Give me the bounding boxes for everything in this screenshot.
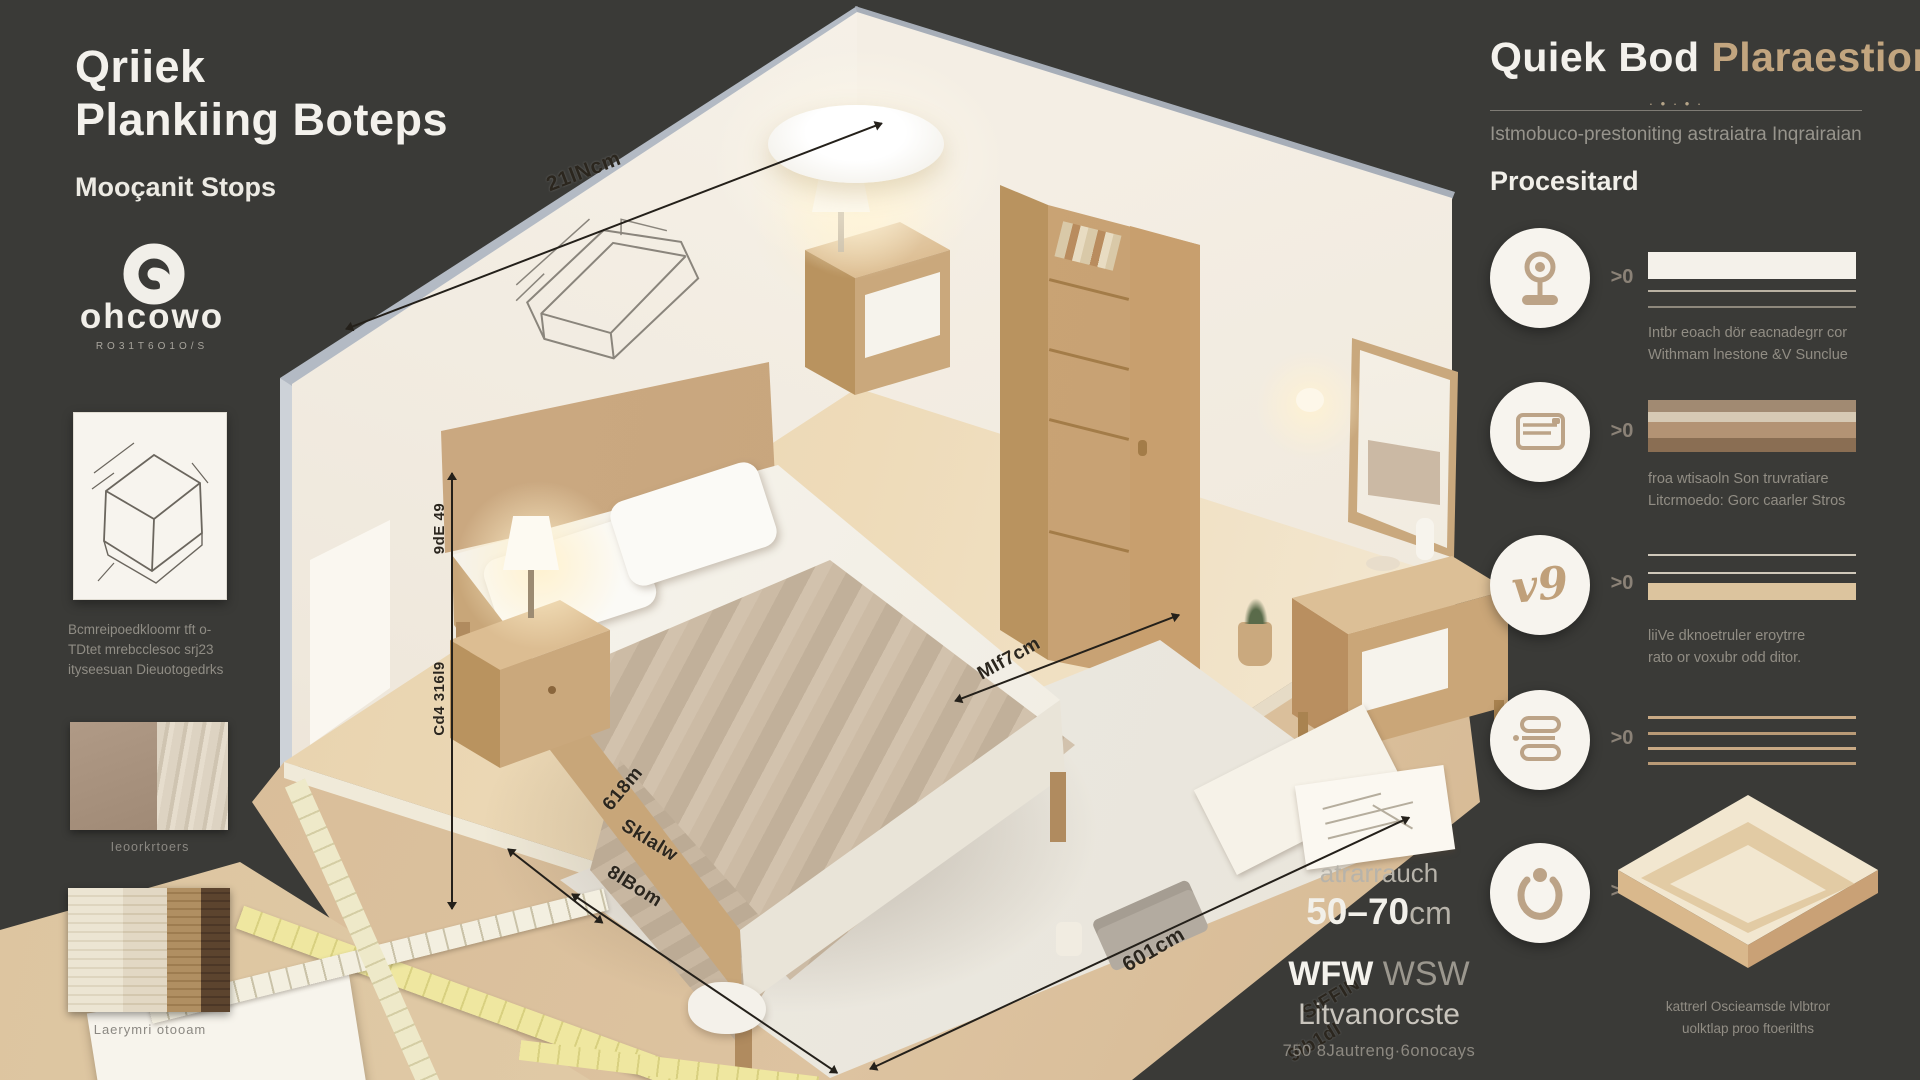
mattress-sketch: [74, 413, 226, 599]
spec-range-value: 50–70: [1306, 891, 1409, 932]
floor-cloth: [688, 982, 766, 1034]
right-title-part2: Plaraestion: [1711, 34, 1920, 80]
swatch-strip-2: [123, 888, 167, 1012]
right-subtitle: Istmobuco-prestoniting astraiatra Inqrai…: [1490, 124, 1890, 146]
pin-marker-icon: [1505, 243, 1575, 313]
page-subtitle: Mooçanit Stops: [75, 172, 276, 203]
spec-code-strong: WFW: [1288, 955, 1373, 993]
sketch-caption: Bcmreipoedkloomr tft o- TDtet mrebccleso…: [68, 620, 243, 680]
dim-label-height-b: Cd4 316l9: [431, 661, 448, 736]
step1-line-2: [1648, 306, 1856, 308]
bed-leg-right: [1050, 772, 1066, 842]
step4-line-1: [1648, 716, 1856, 719]
sketch-caption-line1: Bcmreipoedkloomr tft o-: [68, 620, 243, 640]
step4-line-4: [1648, 762, 1856, 765]
sketch-caption-line2: TDtet mrebcclesoc srj23: [68, 640, 243, 660]
step3-bar-tan: [1648, 583, 1856, 600]
step3-icon-text: v9: [1509, 557, 1570, 614]
step3-circle: v9: [1490, 535, 1590, 635]
title-divider: [1490, 110, 1862, 111]
brand-tagline: RO31T6O1O/S: [30, 341, 274, 352]
spec-code: WFW WSW: [1228, 955, 1530, 994]
swatch-strip-3: [167, 888, 201, 1012]
nightstand-left-knob: [548, 686, 556, 694]
sketch-thumbnail-card: [73, 412, 227, 600]
step2-marker: >0: [1600, 420, 1644, 443]
step4-marker: >0: [1600, 727, 1644, 750]
lamp-right-stem: [838, 210, 844, 252]
step1-caption-line2: Withmam lnestone &V Sunclue: [1648, 344, 1883, 366]
step3-caption-line1: liiVe dknoetruler eroytrre: [1648, 625, 1883, 647]
desk-vase: [1416, 518, 1434, 560]
fabric-swatch-strips: [68, 888, 230, 1012]
spec-footnote: 750 8Jautreng·6onocays: [1228, 1042, 1530, 1061]
desk-bowl: [1366, 556, 1400, 571]
infographic-canvas: 21lNcm 9dE 49 Cd4 316l9 MIf7cm 601cm SIF…: [0, 0, 1920, 1080]
fabric-swatch-draped: [70, 722, 228, 830]
step5-caption-line2: uolktlap proo ftoerilths: [1608, 1018, 1888, 1040]
spec-name: Litvanorcste: [1228, 998, 1530, 1032]
swatch-strip-1: [68, 888, 123, 1012]
plant-bin: [1238, 622, 1272, 666]
step3-caption: liiVe dknoetruler eroytrre rato or voxub…: [1648, 625, 1883, 669]
step2-caption-line2: Litcrmoedo: Gorc caarler Stros: [1648, 490, 1883, 512]
step2-circle: [1490, 382, 1590, 482]
step1-line-1: [1648, 290, 1856, 292]
title-divider-marks: · • · • ·: [1490, 96, 1862, 111]
fabric-swatch-draped-label: Ieoorkrtoers: [60, 840, 240, 854]
step3-line-1: [1648, 554, 1856, 556]
dim-arrow-wall-height: [451, 473, 453, 909]
spec-range-unit: cm: [1409, 895, 1452, 931]
page-title-line2: Plankiing Boteps: [75, 93, 448, 146]
card-icon: [1505, 397, 1575, 467]
brand-wordmark: ohcowo: [30, 297, 274, 337]
wardrobe-knob: [1138, 440, 1147, 456]
list-icon: [1505, 705, 1575, 775]
step1-caption: Intbr eoach dör eacnadegrr cor Withmam l…: [1648, 322, 1883, 366]
step3-marker: >0: [1600, 572, 1644, 595]
floor-bottle: [1056, 922, 1082, 956]
section-heading: Procesitard: [1490, 166, 1639, 197]
spec-range: 50–70cm: [1228, 891, 1530, 933]
page-title: Qriiek Plankiing Boteps: [75, 40, 448, 146]
spec-code-light: WSW: [1373, 955, 1469, 993]
plant-leaves: [1244, 598, 1268, 624]
right-title-part1: Quiek Bod: [1490, 34, 1711, 80]
step3-caption-line2: rato or voxubr odd ditor.: [1648, 647, 1883, 669]
sketch-caption-line3: ityseesuan Dieuotogedrks: [68, 660, 243, 680]
lamp-left-stem: [528, 566, 534, 618]
step4-circle: [1490, 690, 1590, 790]
page-title-line1: Qriiek: [75, 40, 448, 93]
step2-caption: froa wtisaoln Son truvratiare Litcrmoedo…: [1648, 468, 1883, 512]
step5-caption-line1: kattrerl Oscieamsde lvlbtror: [1608, 996, 1888, 1018]
dim-label-height-a: 9dE 49: [431, 503, 448, 554]
step1-marker: >0: [1600, 266, 1644, 289]
step1-caption-line1: Intbr eoach dör eacnadegrr cor: [1648, 322, 1883, 344]
sconce-lamp: [1296, 388, 1324, 412]
step4-line-3: [1648, 747, 1856, 750]
step1-bar-solid: [1648, 252, 1856, 279]
step2-fabric-band: [1648, 400, 1856, 452]
step3-line-2: [1648, 572, 1856, 574]
fabric-swatch-strips-label: Laerymri otooam: [55, 1022, 245, 1037]
step5-caption: kattrerl Oscieamsde lvlbtror uolktlap pr…: [1608, 996, 1888, 1040]
step4-line-2: [1648, 732, 1856, 735]
spec-block: atrarrauch 50–70cm WFW WSW Litvanorcste …: [1228, 858, 1530, 1061]
right-title: Quiek Bod Plaraestion: [1490, 34, 1920, 81]
ceiling-lamp: [768, 105, 944, 183]
step2-caption-line1: froa wtisaoln Son truvratiare: [1648, 468, 1883, 490]
step1-circle: [1490, 228, 1590, 328]
spec-approach-label: atrarrauch: [1228, 858, 1530, 889]
swatch-strip-4: [201, 888, 230, 1012]
